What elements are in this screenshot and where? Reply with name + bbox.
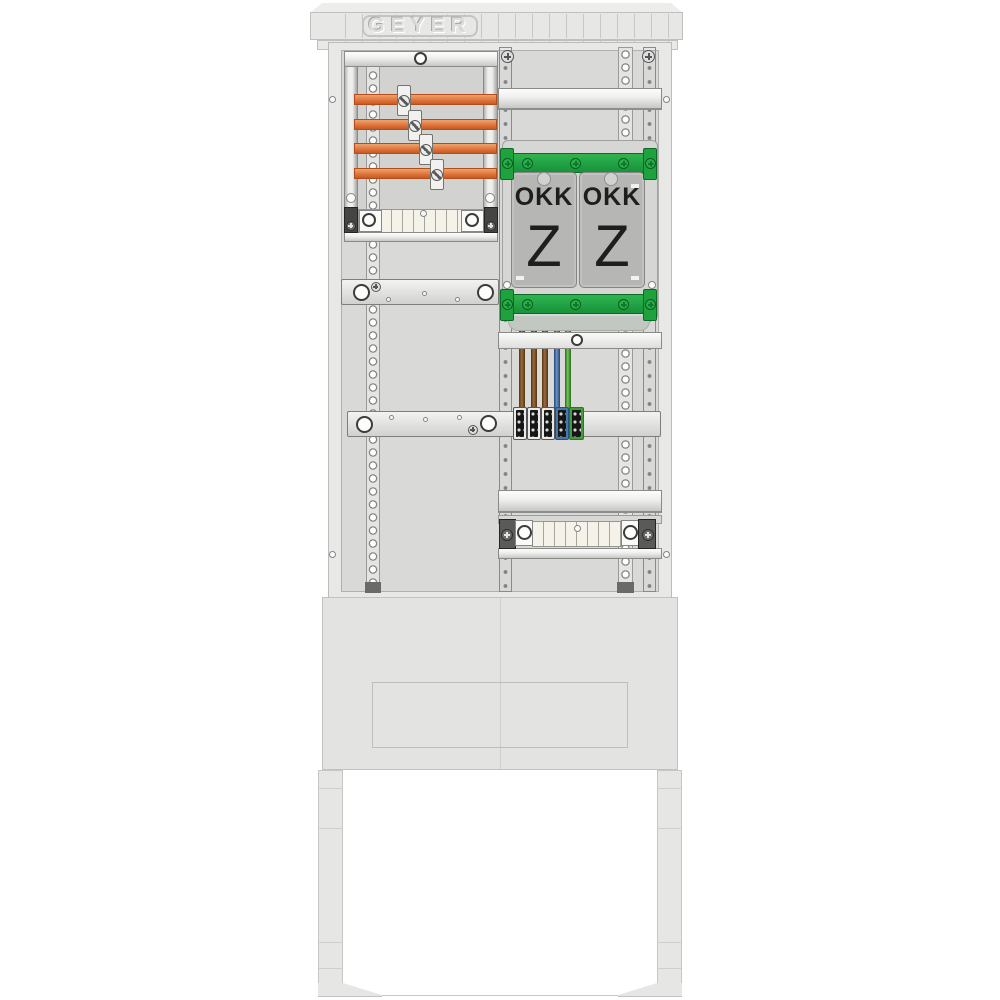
terminal-block-4-blue <box>555 407 569 440</box>
meter-cabinet-product-image: GEYER <box>0 0 1000 1000</box>
slot-screw-icon <box>431 169 443 181</box>
strip-hole <box>420 210 427 217</box>
terminal-contacts <box>530 410 538 437</box>
slot-screw-icon <box>409 120 421 132</box>
slot-screw-icon <box>420 144 432 156</box>
perforated-strip-right-cap <box>617 582 634 593</box>
green-screw-icon <box>645 158 656 169</box>
foot-right <box>618 983 682 997</box>
leg-seam <box>319 828 342 829</box>
leg-left <box>318 770 343 996</box>
screw-icon <box>501 529 513 541</box>
meter-frame-bottom-bar <box>344 232 498 242</box>
clamp-ring-right <box>465 213 479 227</box>
leg-seam <box>319 942 342 943</box>
busbar-n <box>354 168 497 179</box>
green-screw-icon <box>618 299 629 310</box>
bracket-hole <box>423 417 428 422</box>
rail-screw-right <box>485 193 495 203</box>
assembly-hole <box>503 281 511 289</box>
base-inner-outline <box>372 682 628 748</box>
clamp-ring <box>517 525 532 540</box>
perforated-strip-left <box>366 55 380 593</box>
perforated-strip-left-cap <box>365 582 381 593</box>
z-label: Z <box>594 218 629 276</box>
brand-plate: GEYER <box>362 15 478 37</box>
corner-screw-icon <box>642 50 655 63</box>
assembly-hole <box>648 281 656 289</box>
terminal-contacts <box>544 410 552 437</box>
leg-seam <box>319 788 342 789</box>
cover-lock-right <box>604 172 618 186</box>
terminal-contacts <box>572 410 581 437</box>
rail-screw-left <box>346 193 356 203</box>
corner-screw-icon <box>501 50 514 63</box>
green-screw-icon <box>645 299 656 310</box>
lower-terminal-bottom-bar <box>498 548 662 559</box>
green-screw-icon <box>502 158 513 169</box>
terminal-block-3 <box>541 407 555 440</box>
screw-icon <box>371 282 381 292</box>
bracket-ring-hole <box>477 284 494 301</box>
green-screw-icon <box>522 299 533 310</box>
green-screw-icon <box>570 158 581 169</box>
bracket-hole <box>422 291 427 296</box>
cover-notch <box>516 276 524 280</box>
okk-label: OKK <box>515 185 574 210</box>
screw-icon <box>346 221 356 231</box>
frame-hole-bottom-right <box>663 551 670 558</box>
cover-lock-left <box>537 172 551 186</box>
leg-seam <box>658 968 681 969</box>
terminal-block-1 <box>513 407 527 440</box>
frame-hole-bottom-left <box>329 551 336 558</box>
z-label: Z <box>526 218 561 276</box>
bracket-hole <box>386 297 391 302</box>
okk-assembly-recess <box>508 316 650 331</box>
screw-icon <box>468 425 478 435</box>
terminal-contacts <box>558 410 566 437</box>
busbar-l2 <box>354 119 497 130</box>
okk-cover-left: OKK Z <box>511 172 577 288</box>
terminal-block-5-green <box>569 407 584 440</box>
cover-notch <box>631 276 639 280</box>
din-rail-top <box>498 88 662 110</box>
bracket-hole <box>389 415 394 420</box>
screw-icon <box>486 221 496 231</box>
leg-seam <box>658 942 681 943</box>
leg-seam <box>658 788 681 789</box>
leg-seam <box>658 828 681 829</box>
busbar-clamp-4 <box>430 159 444 190</box>
green-screw-icon <box>502 299 513 310</box>
leg-seam <box>319 968 342 969</box>
green-screw-icon <box>618 158 629 169</box>
leg-right <box>657 770 682 996</box>
green-screw-icon <box>570 299 581 310</box>
green-screw-icon <box>522 158 533 169</box>
rail-ring-hole <box>571 334 583 346</box>
okk-label: OKK <box>583 185 642 210</box>
screw-icon <box>642 529 654 541</box>
frame-hole-top-right <box>663 96 670 103</box>
foot-left <box>318 983 382 997</box>
cover-notch <box>631 184 639 188</box>
bracket-ring-hole <box>353 284 370 301</box>
terminal-block-2 <box>527 407 541 440</box>
busbar-l1 <box>354 94 497 105</box>
strip-hole <box>574 525 581 532</box>
bracket-ring-hole <box>356 416 373 433</box>
bracket-hole <box>455 297 460 302</box>
mounting-bracket-lower <box>347 411 661 437</box>
clamp-ring <box>623 525 638 540</box>
terminal-contacts <box>516 410 524 437</box>
clamp-ring-left <box>362 213 376 227</box>
okk-cover-right: OKK Z <box>579 172 645 288</box>
slot-screw-icon <box>398 95 410 107</box>
din-rail-bottom <box>498 490 662 513</box>
top-bar-ring-hole <box>414 52 427 65</box>
bracket-hole <box>457 415 462 420</box>
brand-logo: GEYER <box>368 14 472 38</box>
frame-hole-top-left <box>329 96 336 103</box>
bracket-ring-hole <box>480 415 497 432</box>
